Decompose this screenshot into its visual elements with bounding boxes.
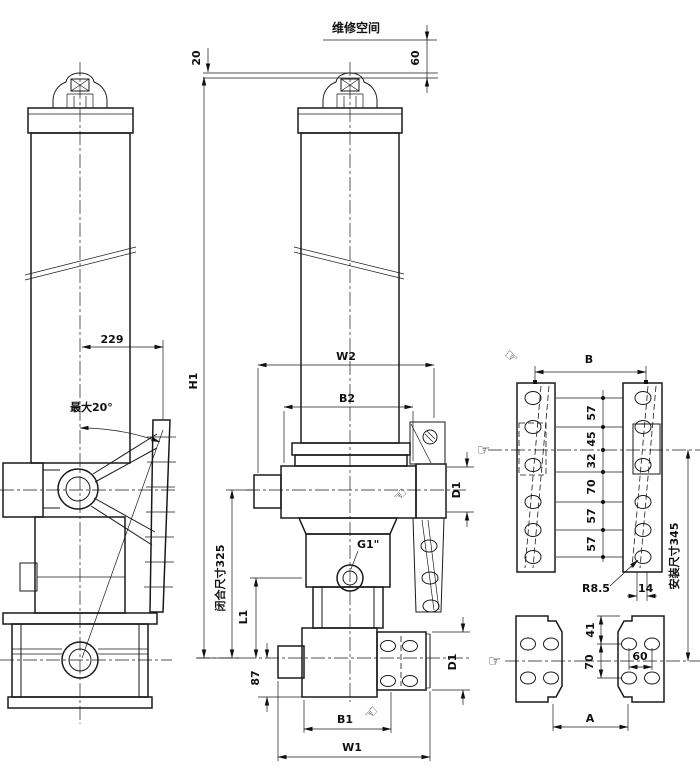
dim-60-holes-label: 60: [632, 650, 648, 663]
hydraulic-cylinder-drawing: 维修空间 20 60: [0, 0, 700, 775]
pitch-45-label: 45: [585, 431, 598, 446]
side-view: 最大20° 229: [0, 62, 178, 724]
dim-87-label: 87: [249, 670, 262, 685]
dim-229-label: 229: [101, 333, 124, 346]
service-space-annotation: 维修空间 20 60: [190, 20, 438, 93]
trunnion-eye: [58, 469, 98, 509]
middle-body: G1": [299, 518, 397, 628]
dim-install-length: 安装尺寸345: [667, 450, 688, 661]
base-block: [278, 628, 430, 697]
dim-60-label: 60: [409, 50, 422, 66]
dim-w2-label: W2: [336, 350, 356, 363]
upper-plate-left: [517, 383, 555, 572]
pitch-57c-label: 57: [585, 536, 598, 551]
dim-d1-upper: D1: [447, 452, 474, 527]
base-plate-detail-view: 41 70 60 A ☞: [488, 616, 700, 731]
dim-b2-label: B2: [339, 392, 355, 405]
pointing-hand-icon: ☜: [360, 702, 382, 724]
dim-b-label: B: [585, 353, 593, 366]
upper-plate-right: [623, 383, 662, 572]
dim-b2: B2: [284, 392, 413, 463]
dim-b: B: [533, 353, 648, 384]
valve-block: [416, 464, 446, 518]
dim-closed-length: 闭合尺寸325: [213, 490, 254, 658]
front-view-dimensions: H1 W2 B2 D1 闭合尺寸325: [187, 77, 474, 761]
hole-pitch-chain: 57 45 32 70 57 57: [556, 390, 623, 562]
dim-d1-lower: D1: [432, 617, 470, 705]
dim-slot: R8.5 14: [582, 560, 657, 601]
dim-w1: W1: [278, 681, 430, 761]
slot-width-label: 14: [638, 582, 654, 595]
service-space-label: 维修空间: [332, 20, 380, 35]
dim-w1-label: W1: [342, 741, 362, 754]
dim-d1-lower-label: D1: [446, 654, 459, 671]
pitch-57b-label: 57: [585, 508, 598, 523]
max-tilt-label: 最大20°: [70, 400, 113, 414]
pitch-32-label: 32: [585, 453, 598, 468]
dim-41: 41: [584, 616, 622, 644]
pointing-hand-icon: ☞: [477, 441, 490, 459]
dim-70-label: 70: [583, 654, 596, 670]
trunnion-boss-left: [254, 475, 281, 508]
install-length-label: 安装尺寸345: [667, 523, 681, 590]
oil-port-label: G1": [357, 538, 379, 551]
pitch-57a-label: 57: [585, 405, 598, 420]
dim-d1-upper-label: D1: [450, 482, 463, 499]
cylinder-cap: [28, 108, 133, 133]
base-plate-left: [516, 616, 562, 702]
dim-h1-label: H1: [187, 373, 200, 390]
pitch-70-label: 70: [585, 479, 598, 495]
dim-l1-label: L1: [237, 610, 250, 625]
lower-cylinder: [20, 517, 125, 613]
pointing-hand-icon: ☜: [389, 484, 411, 506]
dim-b1-label: B1: [337, 713, 353, 726]
pointing-hand-icon: ☞: [488, 652, 501, 670]
dim-a-label: A: [586, 712, 595, 725]
bolt-icon: [423, 430, 437, 444]
slot-radius-label: R8.5: [582, 582, 610, 595]
dim-a: A: [553, 704, 628, 731]
closed-length-label: 闭合尺寸325: [213, 545, 227, 612]
dim-60-holes: 60: [629, 648, 652, 670]
mounting-plate-edge: [144, 420, 176, 612]
dim-41-label: 41: [584, 622, 597, 637]
mounting-plate-detail-view: B 57 45 32 70 57 57 R8.: [477, 345, 700, 661]
pointing-hand-icon: ☞: [500, 345, 522, 367]
dim-20-label: 20: [190, 50, 203, 66]
drawing-page: 维修空间 20 60: [0, 0, 700, 775]
